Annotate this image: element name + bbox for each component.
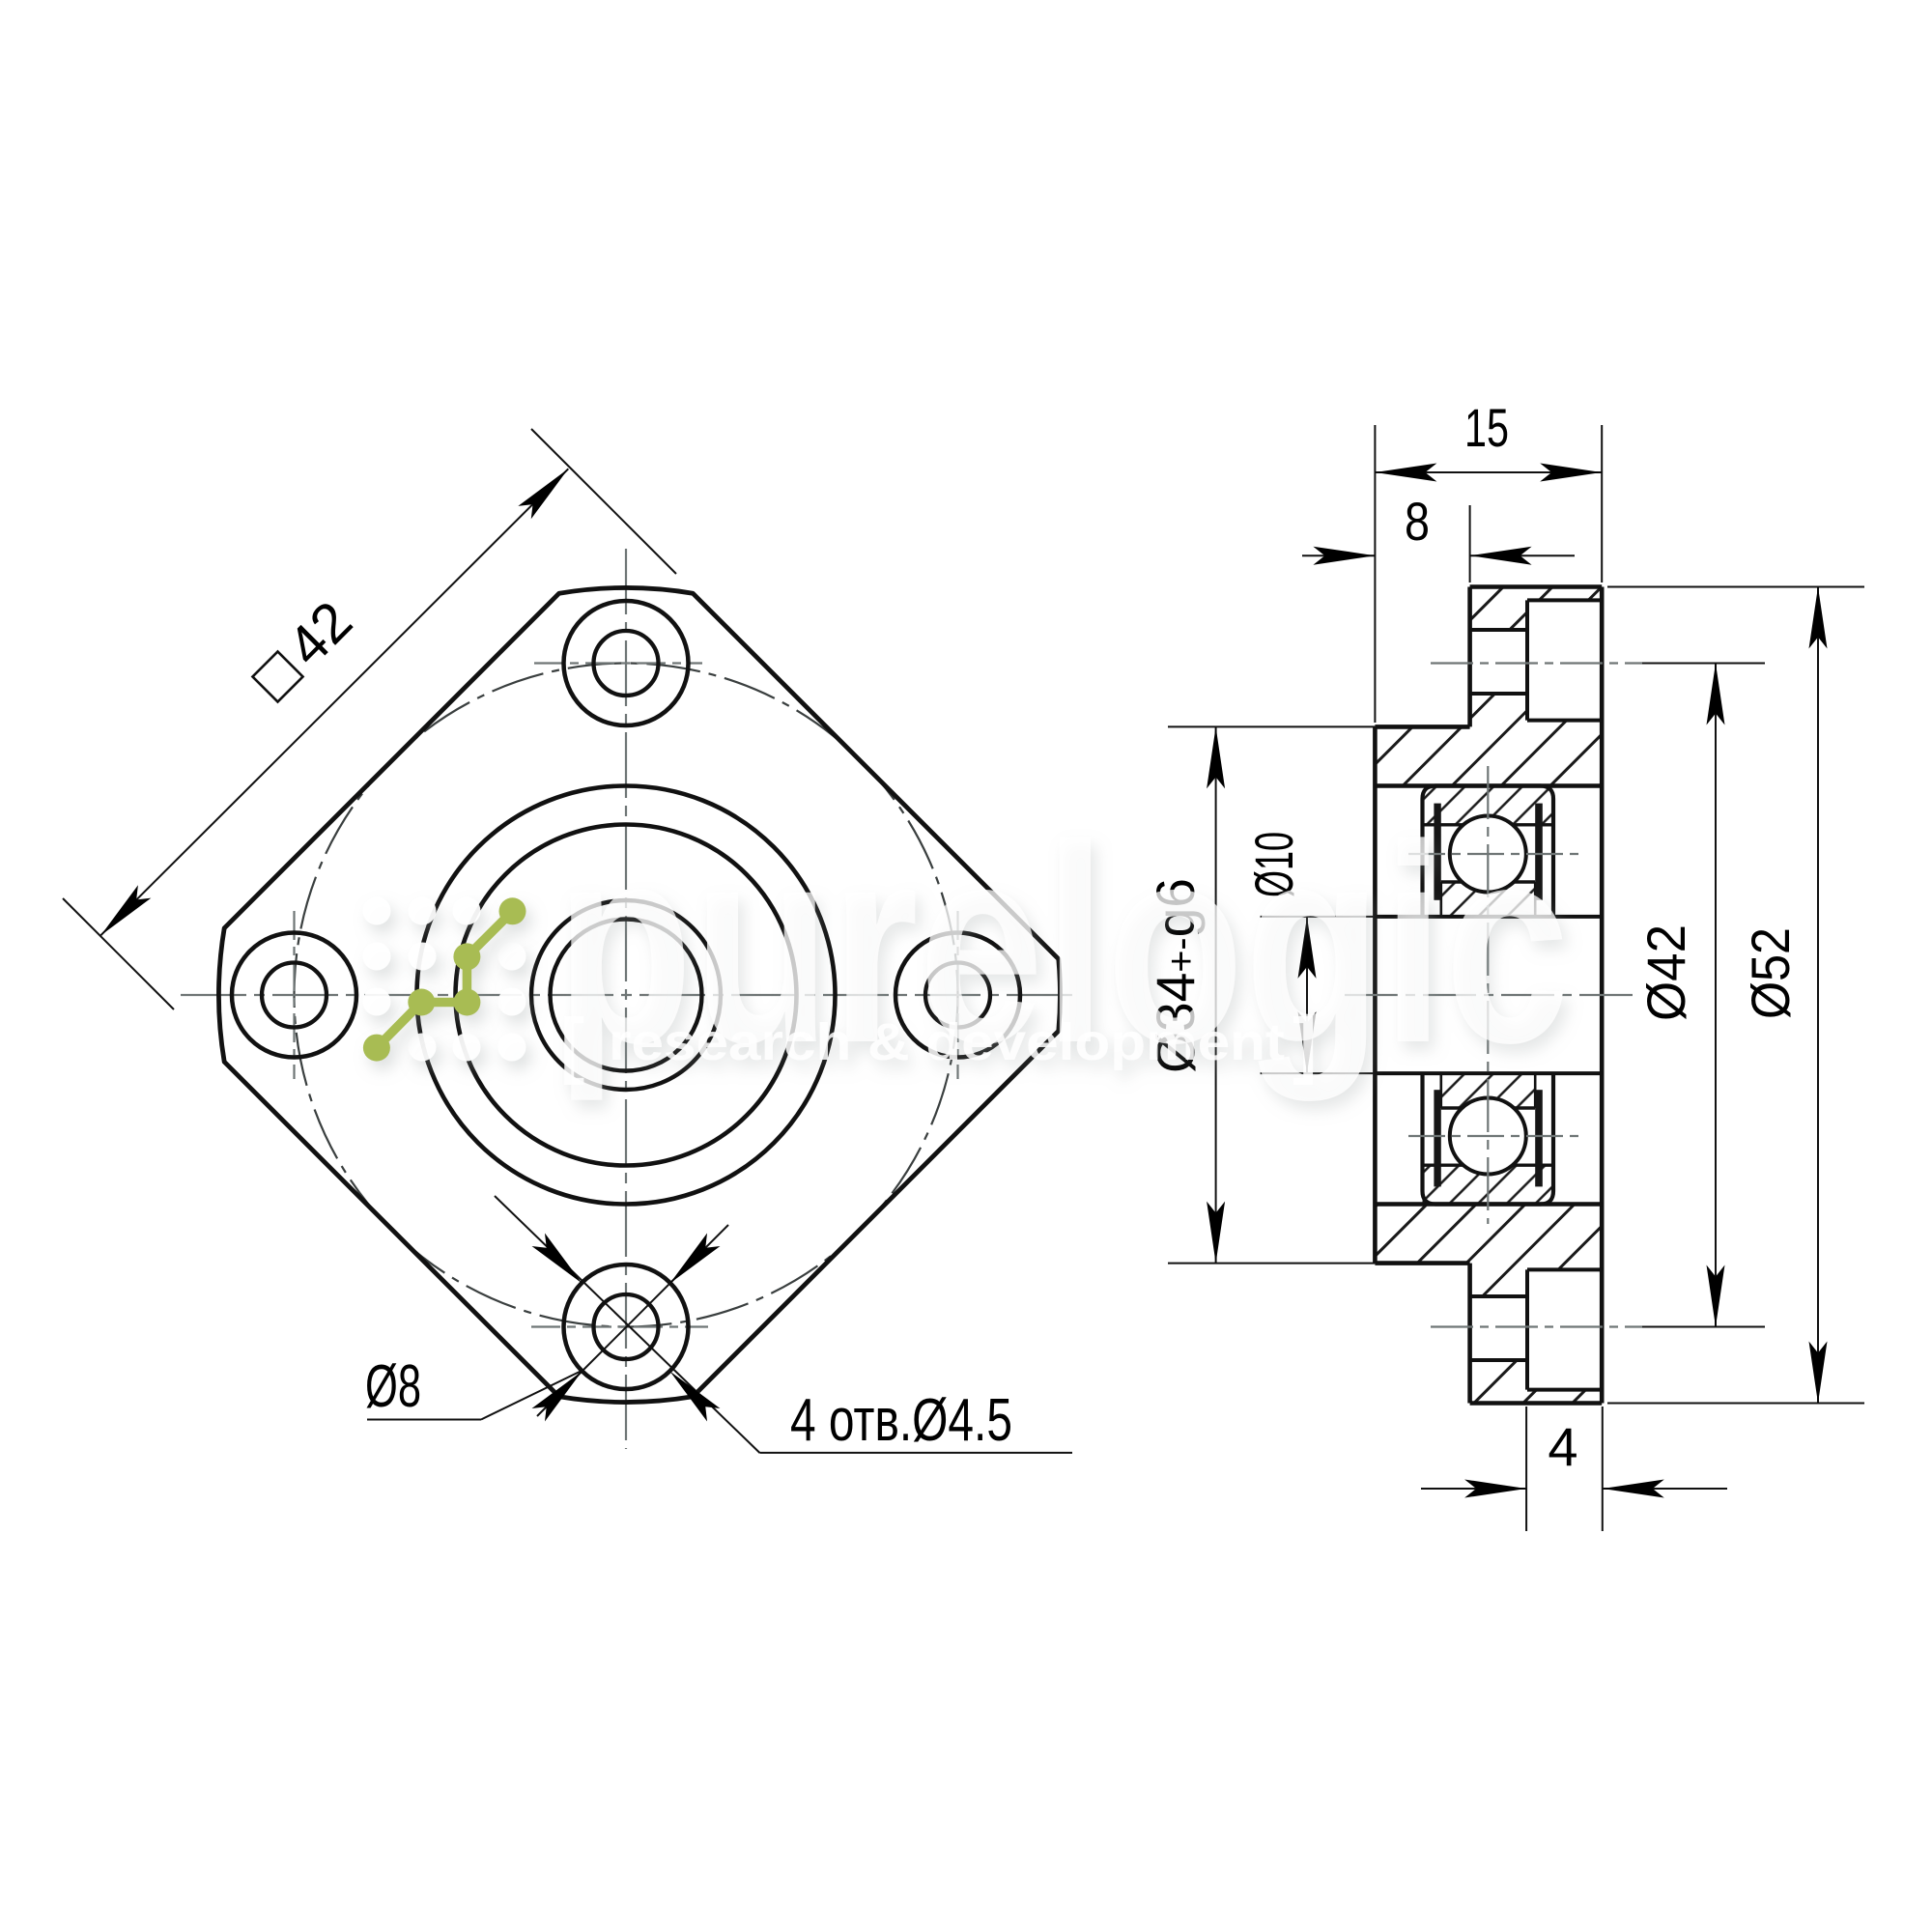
svg-text:8: 8	[1405, 491, 1430, 552]
svg-text:]: ]	[1293, 1004, 1317, 1086]
svg-text:4 отв.Ø4.5: 4 отв.Ø4.5	[790, 1387, 1012, 1454]
svg-text:Ø52: Ø52	[1740, 927, 1801, 1019]
svg-text:4: 4	[1548, 1416, 1577, 1477]
svg-text:research & development: research & development	[609, 1013, 1285, 1071]
svg-text:Ø42: Ø42	[1635, 924, 1696, 1021]
svg-text:Ø8: Ø8	[365, 1353, 421, 1420]
svg-text:15: 15	[1464, 397, 1509, 458]
svg-text:[: [	[560, 1004, 584, 1086]
